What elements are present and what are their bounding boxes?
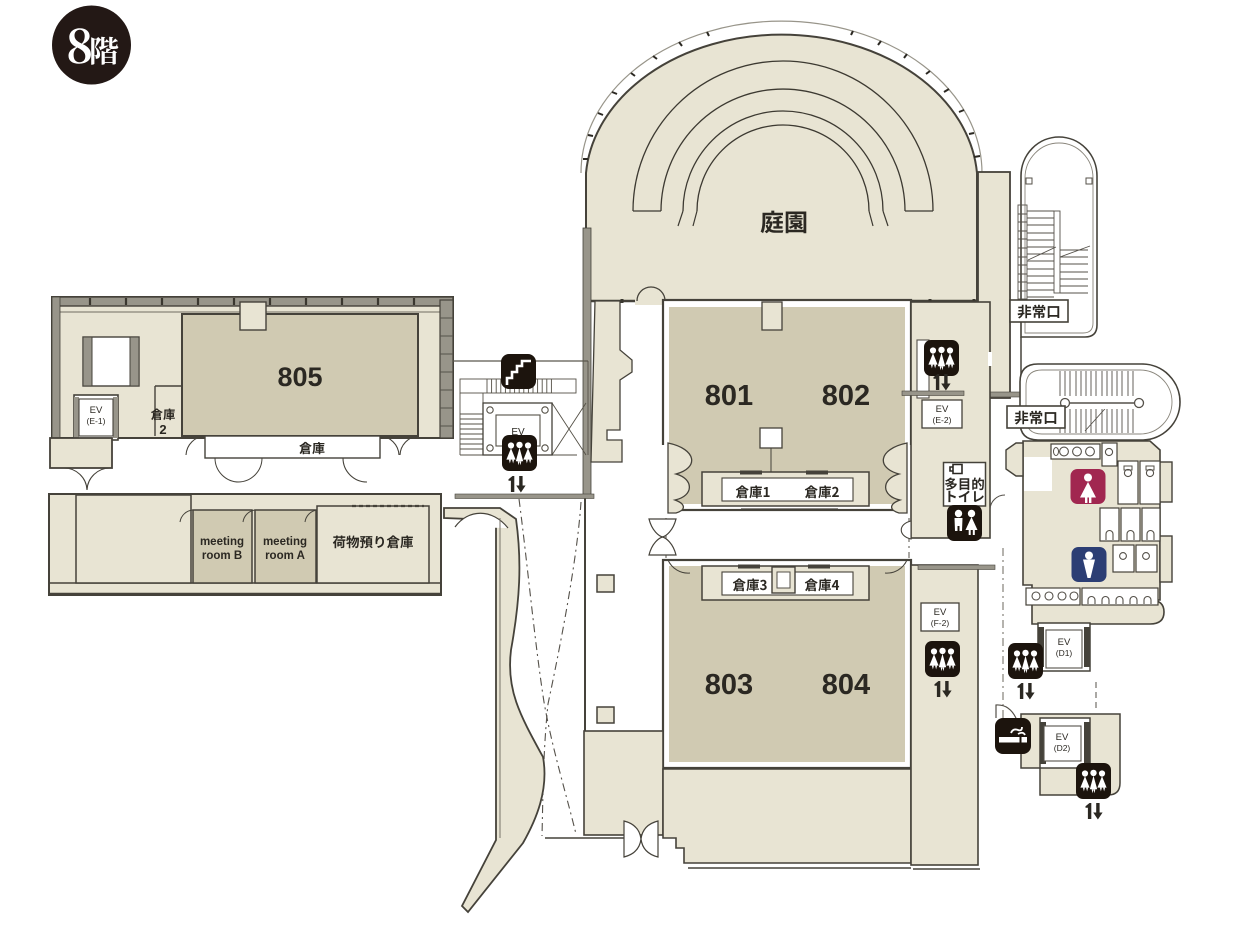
svg-text:EV: EV [1056, 732, 1069, 743]
svg-text:(D2): (D2) [1054, 743, 1071, 753]
svg-text:(F-2): (F-2) [931, 618, 950, 628]
svg-text:(E-1): (E-1) [87, 416, 106, 426]
svg-text:room B: room B [202, 550, 242, 562]
svg-text:EV: EV [936, 404, 949, 415]
svg-text:EV: EV [90, 405, 103, 416]
svg-text:802: 802 [822, 380, 870, 412]
svg-text:EV: EV [934, 607, 947, 618]
svg-text:room A: room A [265, 550, 305, 562]
svg-text:(E-2): (E-2) [933, 415, 952, 425]
svg-text:2: 2 [159, 422, 166, 437]
svg-text:EV: EV [1058, 637, 1071, 648]
svg-text:801: 801 [705, 380, 753, 412]
svg-text:(D1): (D1) [1056, 648, 1073, 658]
svg-text:805: 805 [277, 362, 322, 392]
svg-text:803: 803 [705, 669, 753, 701]
svg-text:meeting: meeting [263, 536, 307, 548]
svg-text:meeting: meeting [200, 536, 244, 548]
svg-text:804: 804 [822, 669, 870, 701]
